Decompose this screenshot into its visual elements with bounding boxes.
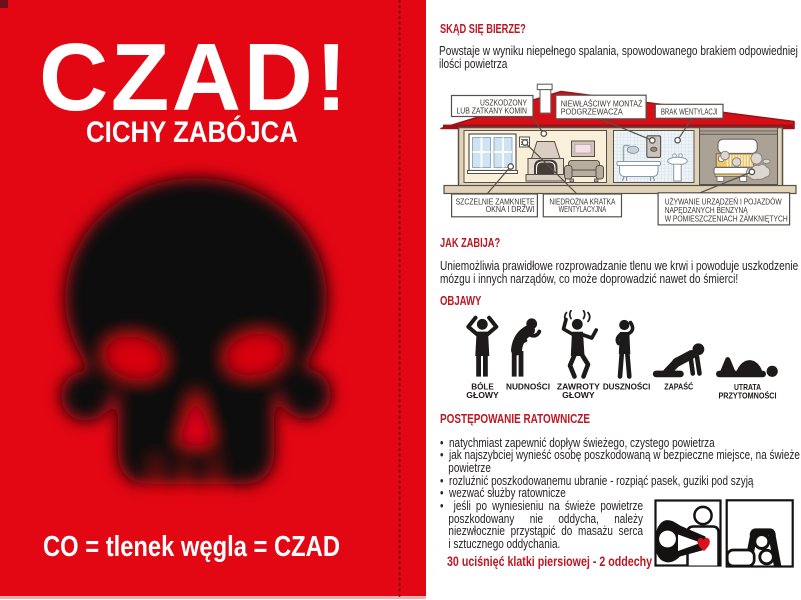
svg-text:GŁOWY: GŁOWY xyxy=(562,390,595,400)
svg-text:LUB ZATKANY KOMIN: LUB ZATKANY KOMIN xyxy=(457,106,528,116)
svg-text:PRZYTOMNOŚCI: PRZYTOMNOŚCI xyxy=(719,389,777,400)
svg-text:W POMIESZCZENIACH ZAMKNIĘTYCH: W POMIESZCZENIACH ZAMKNIĘTYCH xyxy=(665,214,788,224)
svg-text:OKNA I DRZWI: OKNA I DRZWI xyxy=(486,204,535,214)
svg-text:GŁOWY: GŁOWY xyxy=(466,390,499,400)
svg-text:BRAK WENTYLACJI: BRAK WENTYLACJI xyxy=(661,106,718,116)
svg-text:DUSZNOŚCI: DUSZNOŚCI xyxy=(603,381,651,392)
svg-text:NUDNOŚCI: NUDNOŚCI xyxy=(506,381,550,392)
svg-text:WENTYLACYJNA: WENTYLACYJNA xyxy=(559,204,607,214)
svg-text:ZAPAŚĆ: ZAPAŚĆ xyxy=(664,381,693,392)
svg-text:PODGRZEWACZA: PODGRZEWACZA xyxy=(561,107,623,117)
